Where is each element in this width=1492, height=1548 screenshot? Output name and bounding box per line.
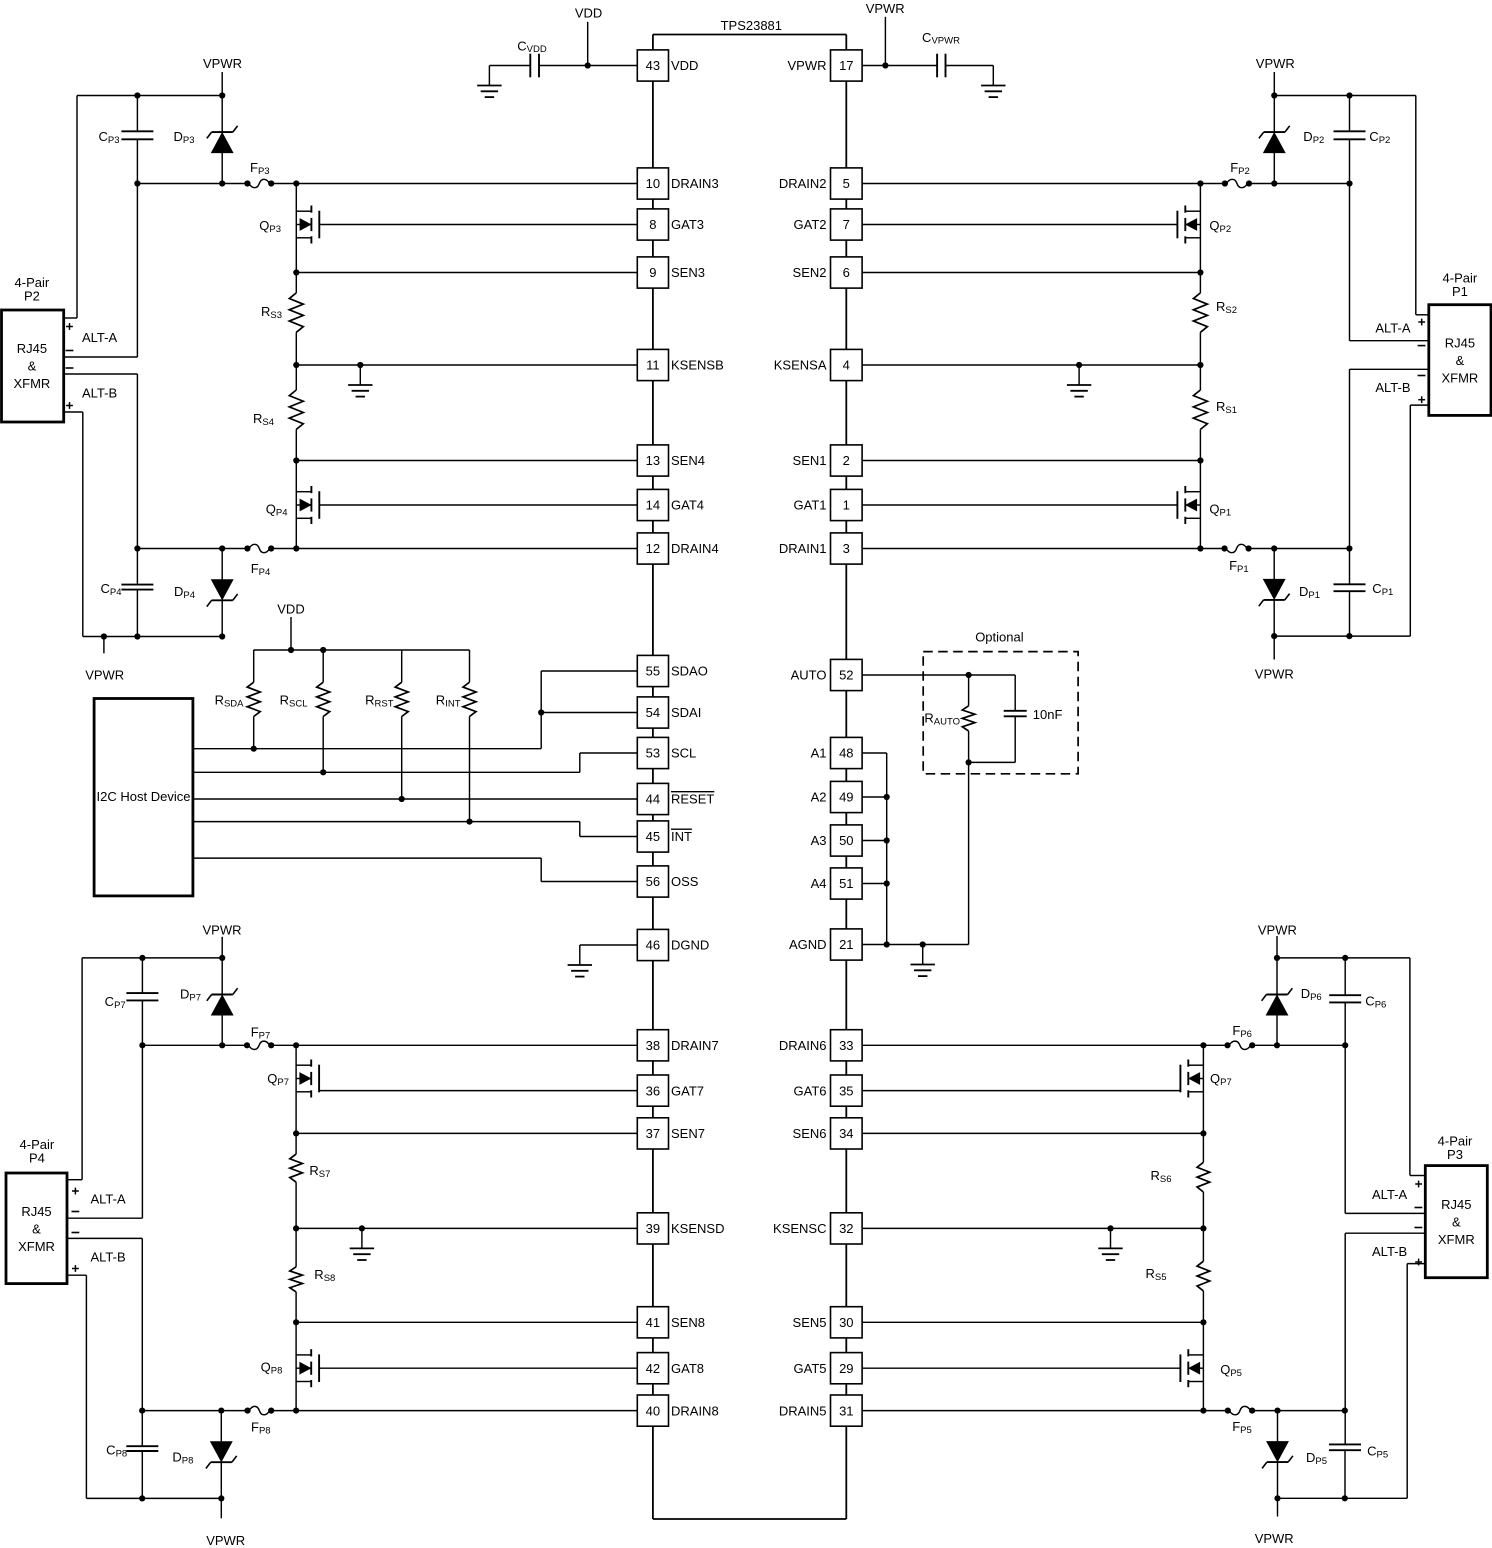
svg-text:48: 48: [839, 746, 853, 761]
svg-text:10: 10: [646, 176, 660, 191]
svg-text:2: 2: [843, 453, 850, 468]
svg-text:DRAIN7: DRAIN7: [671, 1038, 719, 1053]
svg-text:VPWR: VPWR: [85, 668, 124, 683]
svg-text:41: 41: [646, 1315, 660, 1330]
svg-text:VDD: VDD: [575, 6, 602, 21]
svg-text:21: 21: [839, 937, 853, 952]
svg-text:50: 50: [839, 833, 853, 848]
svg-text:43: 43: [646, 58, 660, 73]
svg-text:17: 17: [839, 58, 853, 73]
svg-text:I2C Host Device: I2C Host Device: [97, 789, 191, 804]
svg-text:XFMR: XFMR: [1438, 1232, 1475, 1247]
svg-text:ALT-B: ALT-B: [1375, 380, 1410, 395]
svg-text:AGND: AGND: [789, 937, 827, 952]
svg-text:38: 38: [646, 1038, 660, 1053]
svg-text:13: 13: [646, 453, 660, 468]
svg-text:VPWR: VPWR: [203, 56, 242, 71]
svg-text:29: 29: [839, 1361, 853, 1376]
svg-text:RJ45: RJ45: [1445, 336, 1475, 351]
svg-text:ALT-A: ALT-A: [91, 1192, 126, 1207]
svg-text:9: 9: [649, 265, 656, 280]
svg-text:GAT5: GAT5: [794, 1361, 827, 1376]
svg-text:SEN6: SEN6: [793, 1126, 827, 1141]
svg-text:&: &: [1456, 353, 1465, 368]
svg-text:40: 40: [646, 1403, 660, 1418]
svg-text:&: &: [32, 1222, 41, 1237]
svg-text:RJ45: RJ45: [1441, 1197, 1471, 1212]
svg-text:ALT-B: ALT-B: [82, 386, 117, 401]
svg-text:SEN1: SEN1: [793, 453, 827, 468]
svg-text:44: 44: [646, 792, 660, 807]
svg-text:56: 56: [646, 874, 660, 889]
svg-text:DRAIN3: DRAIN3: [671, 176, 719, 191]
svg-text:SCL: SCL: [671, 746, 696, 761]
svg-text:GAT4: GAT4: [671, 498, 704, 513]
svg-text:KSENSA: KSENSA: [774, 358, 827, 373]
svg-text:4: 4: [843, 358, 850, 373]
svg-text:P1: P1: [1452, 284, 1468, 299]
svg-text:7: 7: [843, 217, 850, 232]
svg-text:VDD: VDD: [277, 602, 304, 617]
svg-text:32: 32: [839, 1221, 853, 1236]
svg-text:VPWR: VPWR: [206, 1533, 245, 1548]
svg-text:SEN2: SEN2: [793, 265, 827, 280]
svg-text:RJ45: RJ45: [21, 1204, 51, 1219]
svg-text:INT: INT: [671, 829, 692, 844]
svg-text:VPWR: VPWR: [1255, 1531, 1294, 1546]
svg-text:42: 42: [646, 1361, 660, 1376]
svg-text:34: 34: [839, 1126, 853, 1141]
svg-text:ALT-B: ALT-B: [1372, 1244, 1407, 1259]
svg-text:SEN7: SEN7: [671, 1126, 705, 1141]
svg-text:51: 51: [839, 876, 853, 891]
svg-text:3: 3: [843, 541, 850, 556]
svg-text:37: 37: [646, 1126, 660, 1141]
svg-text:DRAIN2: DRAIN2: [779, 176, 827, 191]
svg-text:11: 11: [646, 358, 660, 373]
svg-text:39: 39: [646, 1221, 660, 1236]
svg-text:6: 6: [843, 265, 850, 280]
svg-text:A1: A1: [811, 746, 827, 761]
svg-text:DRAIN8: DRAIN8: [671, 1403, 719, 1418]
svg-text:30: 30: [839, 1315, 853, 1330]
svg-text:XFMR: XFMR: [1441, 371, 1478, 386]
svg-text:12: 12: [646, 541, 660, 556]
svg-text:VPWR: VPWR: [1258, 923, 1297, 938]
svg-text:&: &: [28, 359, 37, 374]
svg-text:XFMR: XFMR: [13, 376, 50, 391]
svg-text:54: 54: [646, 705, 660, 720]
svg-text:10nF: 10nF: [1033, 707, 1063, 722]
svg-text:31: 31: [839, 1403, 853, 1418]
svg-text:VDD: VDD: [671, 58, 698, 73]
svg-text:VPWR: VPWR: [203, 923, 242, 938]
svg-text:RJ45: RJ45: [17, 341, 47, 356]
svg-text:36: 36: [646, 1083, 660, 1098]
svg-text:P3: P3: [1447, 1147, 1463, 1162]
svg-text:A3: A3: [811, 833, 827, 848]
svg-text:DGND: DGND: [671, 938, 709, 953]
svg-text:53: 53: [646, 746, 660, 761]
svg-text:SDAO: SDAO: [671, 664, 708, 679]
svg-text:XFMR: XFMR: [18, 1239, 55, 1254]
svg-text:GAT3: GAT3: [671, 217, 704, 232]
svg-text:SEN4: SEN4: [671, 453, 705, 468]
svg-text:A2: A2: [811, 790, 827, 805]
svg-text:GAT7: GAT7: [671, 1083, 704, 1098]
svg-text:SEN8: SEN8: [671, 1315, 705, 1330]
svg-text:55: 55: [646, 664, 660, 679]
svg-text:45: 45: [646, 829, 660, 844]
svg-text:52: 52: [839, 668, 853, 683]
svg-text:VPWR: VPWR: [1255, 667, 1294, 682]
svg-text:DRAIN5: DRAIN5: [779, 1403, 827, 1418]
svg-text:TPS23881: TPS23881: [721, 18, 782, 33]
svg-text:KSENSD: KSENSD: [671, 1221, 724, 1236]
svg-text:GAT2: GAT2: [794, 217, 827, 232]
svg-text:35: 35: [839, 1083, 853, 1098]
svg-text:GAT8: GAT8: [671, 1361, 704, 1376]
svg-text:RESET: RESET: [671, 792, 714, 807]
svg-text:P4: P4: [29, 1151, 45, 1166]
svg-text:33: 33: [839, 1038, 853, 1053]
svg-text:8: 8: [649, 217, 656, 232]
svg-text:SEN5: SEN5: [793, 1315, 827, 1330]
svg-text:1: 1: [843, 498, 850, 513]
svg-text:A4: A4: [811, 876, 827, 891]
svg-text:P2: P2: [24, 289, 40, 304]
svg-text:DRAIN1: DRAIN1: [779, 541, 827, 556]
svg-text:49: 49: [839, 790, 853, 805]
svg-text:14: 14: [646, 498, 660, 513]
svg-text:ALT-A: ALT-A: [82, 330, 117, 345]
svg-text:SEN3: SEN3: [671, 265, 705, 280]
svg-text:ALT-A: ALT-A: [1375, 321, 1410, 336]
svg-text:5: 5: [843, 176, 850, 191]
svg-text:DRAIN4: DRAIN4: [671, 541, 719, 556]
svg-text:Optional: Optional: [975, 630, 1024, 645]
svg-text:46: 46: [646, 938, 660, 953]
svg-text:ALT-A: ALT-A: [1372, 1187, 1407, 1202]
svg-text:AUTO: AUTO: [791, 668, 827, 683]
svg-text:SDAI: SDAI: [671, 705, 701, 720]
svg-text:VPWR: VPWR: [788, 58, 827, 73]
svg-text:VPWR: VPWR: [1256, 56, 1295, 71]
svg-text:KSENSB: KSENSB: [671, 358, 724, 373]
svg-text:OSS: OSS: [671, 874, 699, 889]
svg-text:&: &: [1452, 1215, 1461, 1230]
svg-text:ALT-B: ALT-B: [91, 1250, 126, 1265]
svg-text:GAT6: GAT6: [794, 1083, 827, 1098]
svg-text:VPWR: VPWR: [866, 1, 905, 16]
svg-text:KSENSC: KSENSC: [773, 1221, 826, 1236]
svg-text:DRAIN6: DRAIN6: [779, 1038, 827, 1053]
svg-text:GAT1: GAT1: [794, 498, 827, 513]
